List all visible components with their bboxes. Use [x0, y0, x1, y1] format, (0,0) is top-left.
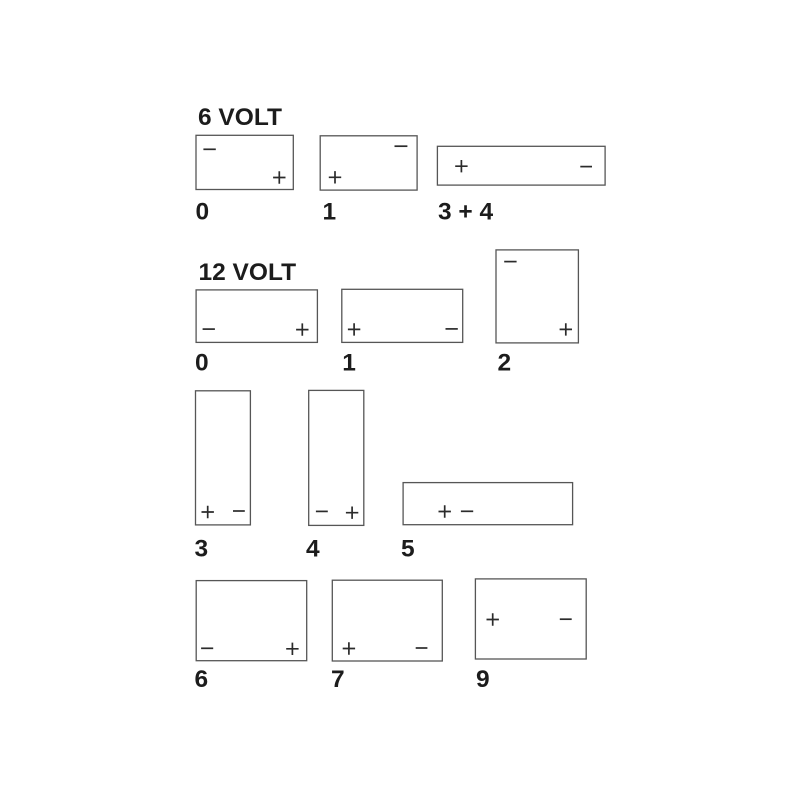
- svg-text:1: 1: [323, 199, 337, 226]
- svg-text:0: 0: [196, 199, 210, 226]
- svg-text:6: 6: [195, 666, 209, 693]
- svg-text:9: 9: [476, 666, 490, 693]
- svg-text:1: 1: [342, 350, 356, 377]
- svg-text:3 + 4: 3 + 4: [438, 199, 494, 226]
- svg-text:12 VOLT: 12 VOLT: [199, 259, 297, 286]
- svg-text:4: 4: [306, 536, 320, 563]
- svg-text:3: 3: [195, 536, 209, 563]
- svg-text:0: 0: [195, 350, 209, 377]
- svg-text:2: 2: [498, 350, 512, 377]
- svg-text:7: 7: [331, 666, 345, 693]
- svg-text:5: 5: [401, 536, 415, 563]
- svg-text:6 VOLT: 6 VOLT: [198, 104, 282, 131]
